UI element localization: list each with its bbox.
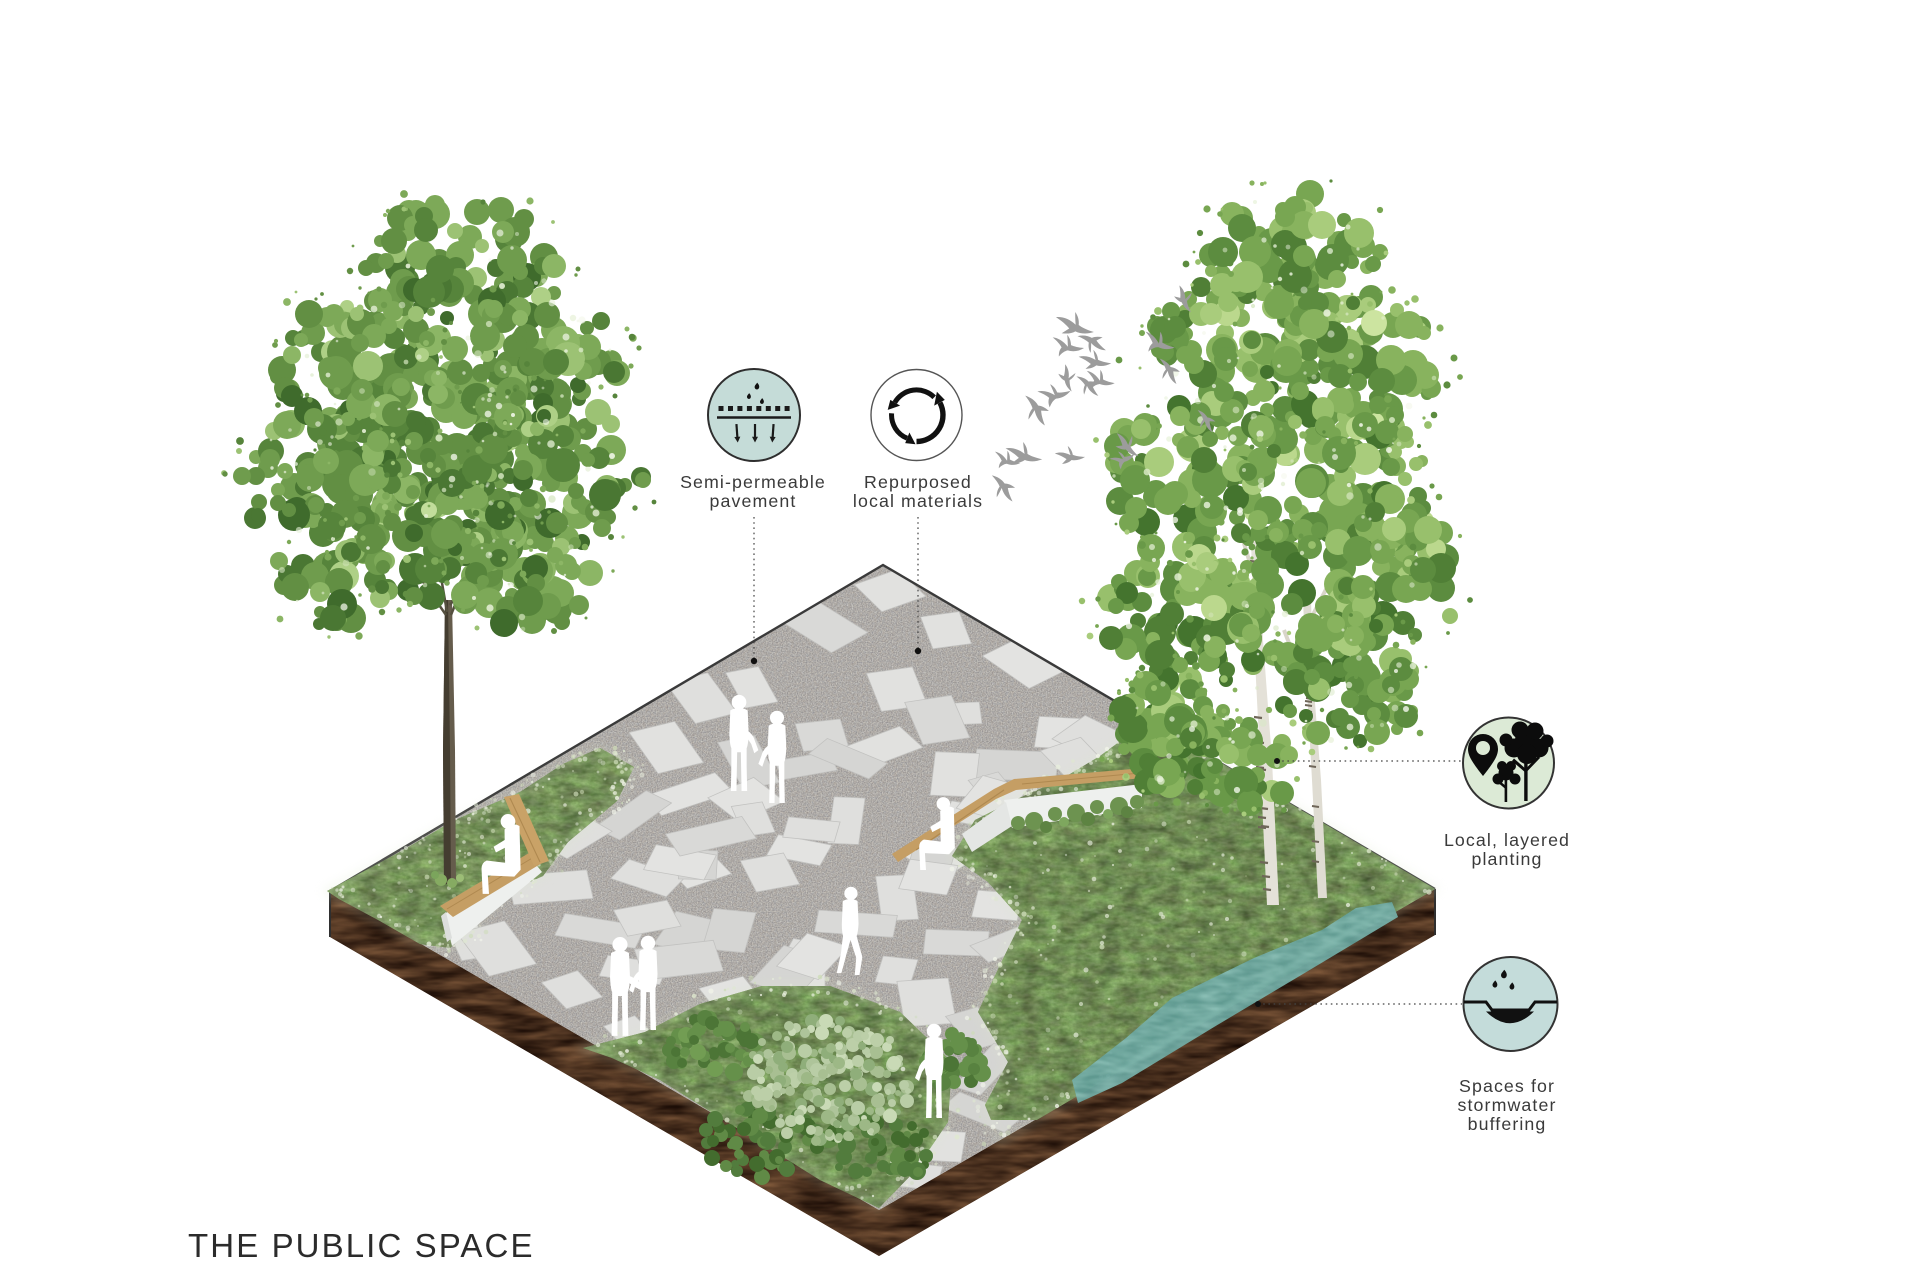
svg-text:THE PUBLIC SPACE: THE PUBLIC SPACE: [188, 1227, 535, 1264]
svg-text:Spaces for: Spaces for: [1459, 1076, 1555, 1096]
svg-text:buffering: buffering: [1468, 1114, 1547, 1134]
svg-text:local materials: local materials: [853, 491, 983, 511]
svg-text:stormwater: stormwater: [1458, 1095, 1557, 1115]
svg-text:planting: planting: [1471, 849, 1542, 869]
svg-text:pavement: pavement: [710, 491, 797, 511]
svg-text:Semi-permeable: Semi-permeable: [680, 472, 826, 492]
svg-text:Local, layered: Local, layered: [1444, 830, 1570, 850]
svg-text:Repurposed: Repurposed: [864, 472, 972, 492]
